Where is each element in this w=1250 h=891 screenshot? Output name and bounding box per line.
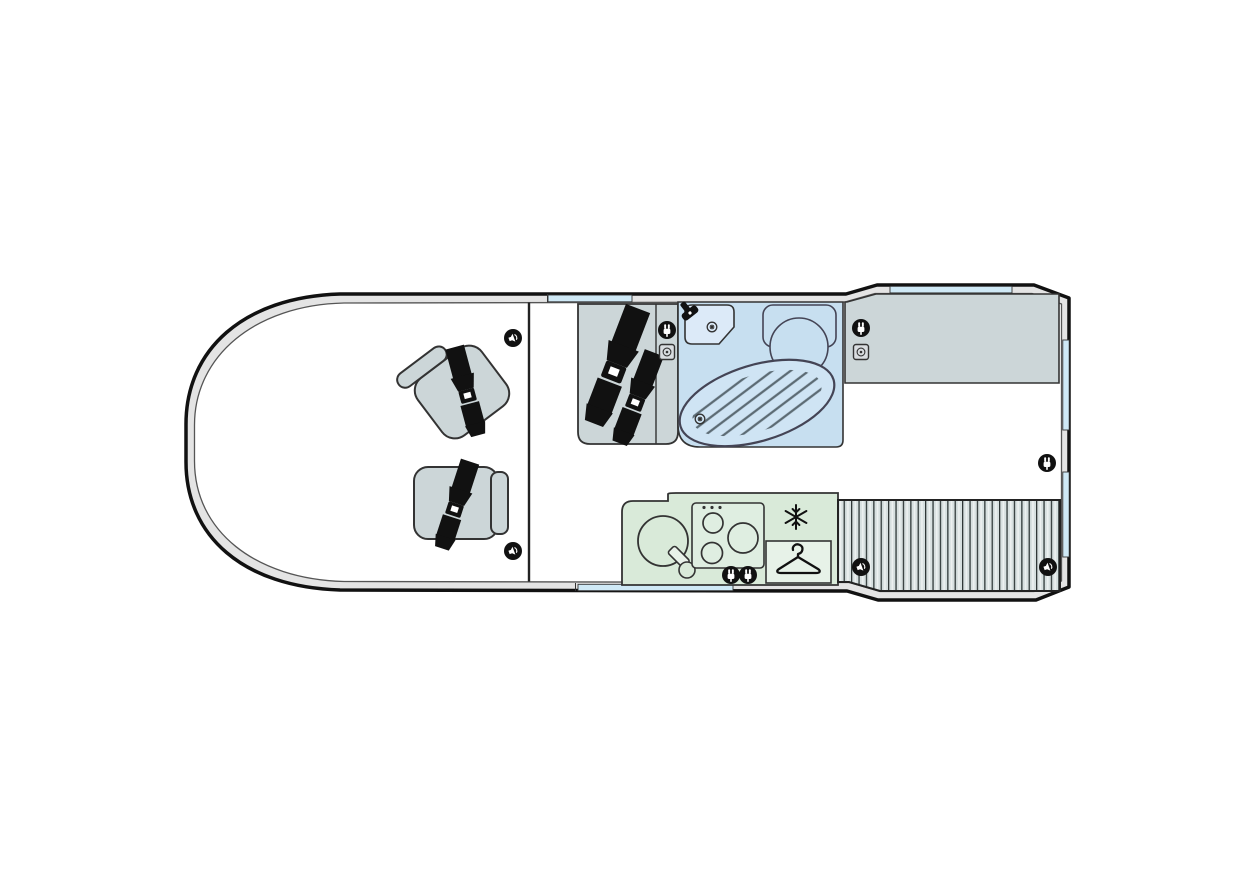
power-socket-icon (739, 566, 757, 584)
hob-knob (718, 506, 721, 509)
floorplan-svg (0, 0, 1250, 891)
seat-headrest (491, 472, 508, 534)
window-rear-right-upper (1063, 340, 1069, 430)
wardrobe (766, 541, 831, 583)
bathroom (669, 297, 844, 463)
power-socket-icon (852, 319, 870, 337)
power-socket-icon (1038, 454, 1056, 472)
speaker-icon (504, 329, 522, 347)
speaker-icon (1039, 558, 1057, 576)
wardrobe-cabinet (766, 541, 831, 583)
bed-slats (838, 500, 1060, 591)
hob (692, 503, 764, 568)
sideboard (845, 294, 1059, 383)
aux-socket-icon (660, 345, 675, 360)
kitchen (622, 493, 838, 585)
speaker-icon (504, 542, 522, 560)
window-lounge (548, 295, 632, 302)
sideboard-top (845, 294, 1059, 383)
hob-knob (702, 506, 705, 509)
power-socket-icon (722, 566, 740, 584)
lounge-bench (578, 303, 678, 448)
speaker-icon (852, 558, 870, 576)
window-rear-top (890, 286, 1012, 293)
power-socket-icon (658, 321, 676, 339)
window-rear-right-lower (1063, 472, 1069, 557)
aux-socket-icon (854, 345, 869, 360)
hob-knob (710, 506, 713, 509)
rear-bed (838, 500, 1060, 591)
floorplan-canvas (0, 0, 1250, 891)
